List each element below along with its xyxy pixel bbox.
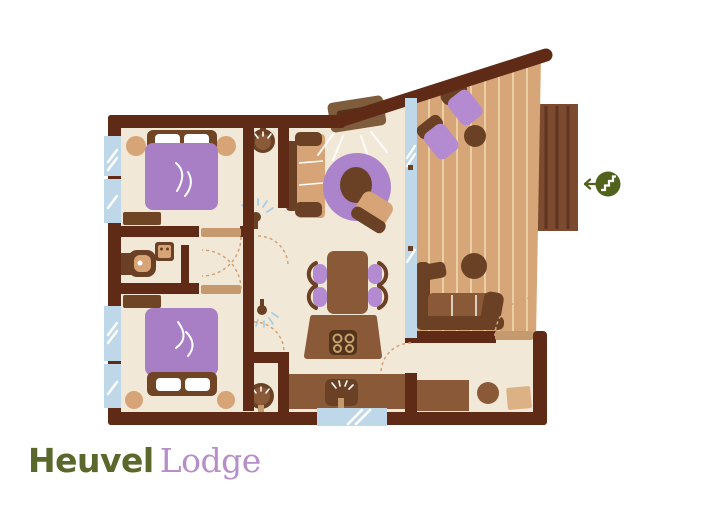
kitchen-counter — [289, 374, 408, 412]
stove-burners-icon — [329, 330, 357, 355]
sofa — [286, 132, 325, 218]
dining-chair — [313, 264, 327, 284]
washbasin-icon — [155, 242, 174, 261]
nightstand — [216, 136, 236, 156]
left-arrow-icon — [585, 180, 597, 189]
dining-table — [327, 251, 368, 314]
bench — [417, 380, 469, 411]
dining-chair — [368, 264, 382, 284]
door-leaf — [495, 331, 533, 340]
wall-bed2-top — [121, 283, 199, 294]
wall-bath2-right — [181, 245, 189, 283]
door-leaf — [201, 228, 241, 237]
nightstand — [126, 136, 146, 156]
pouf — [477, 382, 499, 404]
wall-kitchen-entry — [405, 373, 417, 414]
kitchen-island — [307, 318, 379, 356]
brand-name: Heuvel — [28, 441, 154, 480]
floor-plan-illustration — [0, 0, 707, 500]
wardrobe — [123, 295, 161, 308]
toilet-icon — [121, 250, 156, 277]
bed-1 — [145, 130, 218, 210]
wardrobe — [123, 212, 161, 225]
brand-type: Lodge — [160, 441, 261, 480]
stairs-entrance-icon — [585, 172, 621, 197]
window — [104, 306, 121, 361]
logo: HeuvelLodge — [28, 441, 261, 480]
wall-entry-right — [533, 331, 547, 425]
wall-bath3-right — [278, 352, 289, 412]
glass-wall — [405, 98, 417, 338]
wall-bed1-bottom — [121, 226, 199, 237]
heuvel-lodge-floorplan-page: { "logo": { "name": "Heuvel", "type": "L… — [0, 0, 707, 500]
floor-plan-svg — [0, 0, 707, 500]
window-kitchen — [317, 408, 387, 426]
wall-top — [108, 115, 345, 128]
nightstand — [217, 391, 235, 409]
nightstand — [125, 391, 143, 409]
deck-side-table — [464, 125, 486, 147]
wall-bath1-bottom-stub — [240, 226, 254, 237]
wall-entry-top — [405, 331, 496, 343]
bed-2 — [145, 308, 218, 396]
doormat — [506, 386, 532, 410]
door-leaf — [201, 285, 241, 294]
wall-bath1-right — [278, 128, 289, 208]
wall-mid-vertical — [243, 128, 254, 411]
dining-chair — [313, 287, 327, 307]
stairs-platform — [535, 104, 578, 231]
deck-side-table — [461, 253, 487, 279]
dining-chair — [368, 287, 382, 307]
